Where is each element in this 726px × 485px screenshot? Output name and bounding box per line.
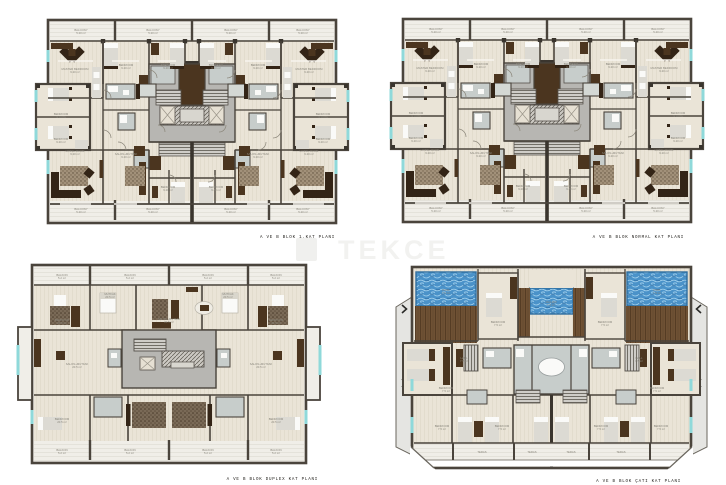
svg-text:20.5 m²: 20.5 m² bbox=[164, 320, 174, 324]
svg-text:5.20 m²: 5.20 m² bbox=[76, 31, 86, 35]
svg-text:A VE B BLOK DUPLEX KAT PLANI: A VE B BLOK DUPLEX KAT PLANI bbox=[227, 478, 318, 482]
svg-text:5.20 m²: 5.20 m² bbox=[298, 31, 308, 35]
svg-text:7.5 m²: 7.5 m² bbox=[597, 427, 605, 431]
svg-text:7.5 m²: 7.5 m² bbox=[653, 291, 661, 295]
svg-text:5.2 m²: 5.2 m² bbox=[272, 276, 280, 280]
svg-text:5.20 m²: 5.20 m² bbox=[226, 210, 236, 214]
svg-text:TERAS: TERAS bbox=[566, 450, 575, 454]
svg-text:7.5 m²: 7.5 m² bbox=[498, 427, 506, 431]
svg-text:9.20 m²: 9.20 m² bbox=[566, 187, 576, 191]
svg-text:9.20 m²: 9.20 m² bbox=[425, 151, 435, 155]
svg-text:20.5 m²: 20.5 m² bbox=[256, 365, 266, 369]
svg-text:9.20 m²: 9.20 m² bbox=[566, 65, 576, 69]
svg-text:5.20 m²: 5.20 m² bbox=[431, 30, 441, 34]
svg-text:7.5 m²: 7.5 m² bbox=[547, 303, 555, 307]
svg-text:9.20 m²: 9.20 m² bbox=[211, 188, 221, 192]
svg-text:5.20 m²: 5.20 m² bbox=[148, 210, 158, 214]
svg-text:A VE B BLOK ÇATI KAT PLANI: A VE B BLOK ÇATI KAT PLANI bbox=[596, 480, 681, 484]
svg-text:9.20 m²: 9.20 m² bbox=[659, 69, 669, 73]
svg-text:TERAS: TERAS bbox=[616, 450, 625, 454]
svg-text:9.20 m²: 9.20 m² bbox=[121, 155, 131, 159]
svg-text:TERAS: TERAS bbox=[477, 450, 486, 454]
svg-text:5.2 m²: 5.2 m² bbox=[272, 451, 280, 455]
svg-text:5.20 m²: 5.20 m² bbox=[581, 209, 591, 213]
svg-text:9.20 m²: 9.20 m² bbox=[411, 114, 421, 118]
svg-text:A VE B BLOK 1.KAT PLANI: A VE B BLOK 1.KAT PLANI bbox=[260, 236, 335, 240]
svg-text:TEKCE: TEKCE bbox=[338, 235, 450, 265]
svg-text:9.20 m²: 9.20 m² bbox=[211, 66, 221, 70]
svg-text:9.20 m²: 9.20 m² bbox=[56, 140, 66, 144]
svg-text:9.20 m²: 9.20 m² bbox=[318, 115, 328, 119]
svg-text:9.20 m²: 9.20 m² bbox=[476, 154, 486, 158]
svg-text:9.20 m²: 9.20 m² bbox=[411, 139, 421, 143]
svg-text:5.2 m²: 5.2 m² bbox=[126, 451, 134, 455]
svg-text:7.5 m²: 7.5 m² bbox=[442, 389, 450, 393]
svg-text:9.20 m²: 9.20 m² bbox=[518, 187, 528, 191]
svg-text:7.5 m²: 7.5 m² bbox=[438, 427, 446, 431]
svg-text:5.20 m²: 5.20 m² bbox=[503, 30, 513, 34]
svg-text:9.20 m²: 9.20 m² bbox=[659, 151, 669, 155]
svg-text:9.20 m²: 9.20 m² bbox=[425, 69, 435, 73]
svg-text:9.20 m²: 9.20 m² bbox=[318, 140, 328, 144]
svg-text:5.20 m²: 5.20 m² bbox=[581, 30, 591, 34]
svg-text:9.20 m²: 9.20 m² bbox=[304, 152, 314, 156]
svg-text:9.20 m²: 9.20 m² bbox=[163, 188, 173, 192]
svg-text:9.20 m²: 9.20 m² bbox=[70, 70, 80, 74]
svg-text:7.5 m²: 7.5 m² bbox=[601, 323, 609, 327]
svg-text:5.20 m²: 5.20 m² bbox=[653, 209, 663, 213]
svg-text:9.20 m²: 9.20 m² bbox=[608, 65, 618, 69]
svg-text:20.5 m²: 20.5 m² bbox=[57, 420, 67, 424]
svg-text:9.20 m²: 9.20 m² bbox=[253, 155, 263, 159]
svg-text:5.2 m²: 5.2 m² bbox=[58, 276, 66, 280]
svg-text:9.20 m²: 9.20 m² bbox=[673, 139, 683, 143]
svg-text:20.5 m²: 20.5 m² bbox=[57, 321, 67, 325]
svg-text:5.20 m²: 5.20 m² bbox=[148, 31, 158, 35]
svg-text:5.2 m²: 5.2 m² bbox=[126, 276, 134, 280]
svg-text:5.2 m²: 5.2 m² bbox=[204, 451, 212, 455]
svg-text:7.5 m²: 7.5 m² bbox=[635, 359, 643, 363]
svg-text:9.20 m²: 9.20 m² bbox=[608, 154, 618, 158]
svg-text:9.20 m²: 9.20 m² bbox=[476, 65, 486, 69]
svg-text:TERAS: TERAS bbox=[527, 450, 536, 454]
svg-text:20.5 m²: 20.5 m² bbox=[271, 420, 281, 424]
svg-text:5.20 m²: 5.20 m² bbox=[226, 31, 236, 35]
svg-text:20.5 m²: 20.5 m² bbox=[72, 365, 82, 369]
svg-text:5.20 m²: 5.20 m² bbox=[503, 209, 513, 213]
svg-text:9.20 m²: 9.20 m² bbox=[56, 115, 66, 119]
svg-text:9.20 m²: 9.20 m² bbox=[253, 66, 263, 70]
svg-text:20.5 m²: 20.5 m² bbox=[105, 295, 115, 299]
svg-text:7.5 m²: 7.5 m² bbox=[653, 389, 661, 393]
svg-text:9.20 m²: 9.20 m² bbox=[163, 66, 173, 70]
svg-text:A VE B BLOK NORMAL KAT PLANI: A VE B BLOK NORMAL KAT PLANI bbox=[593, 236, 684, 240]
svg-text:7.5 m²: 7.5 m² bbox=[494, 323, 502, 327]
svg-text:7.5 m²: 7.5 m² bbox=[442, 291, 450, 295]
svg-text:7.5 m²: 7.5 m² bbox=[657, 427, 665, 431]
svg-text:5.20 m²: 5.20 m² bbox=[76, 210, 86, 214]
svg-text:7.5 m²: 7.5 m² bbox=[460, 359, 468, 363]
svg-text:5.2 m²: 5.2 m² bbox=[204, 276, 212, 280]
svg-text:5.20 m²: 5.20 m² bbox=[431, 209, 441, 213]
svg-text:20.5 m²: 20.5 m² bbox=[223, 295, 233, 299]
svg-text:9.20 m²: 9.20 m² bbox=[304, 70, 314, 74]
svg-text:5.20 m²: 5.20 m² bbox=[653, 30, 663, 34]
svg-text:5.20 m²: 5.20 m² bbox=[298, 210, 308, 214]
svg-text:9.20 m²: 9.20 m² bbox=[70, 152, 80, 156]
svg-text:9.20 m²: 9.20 m² bbox=[518, 65, 528, 69]
svg-text:9.20 m²: 9.20 m² bbox=[673, 114, 683, 118]
svg-text:9.20 m²: 9.20 m² bbox=[121, 66, 131, 70]
svg-text:5.2 m²: 5.2 m² bbox=[58, 451, 66, 455]
svg-text:20.5 m²: 20.5 m² bbox=[271, 321, 281, 325]
